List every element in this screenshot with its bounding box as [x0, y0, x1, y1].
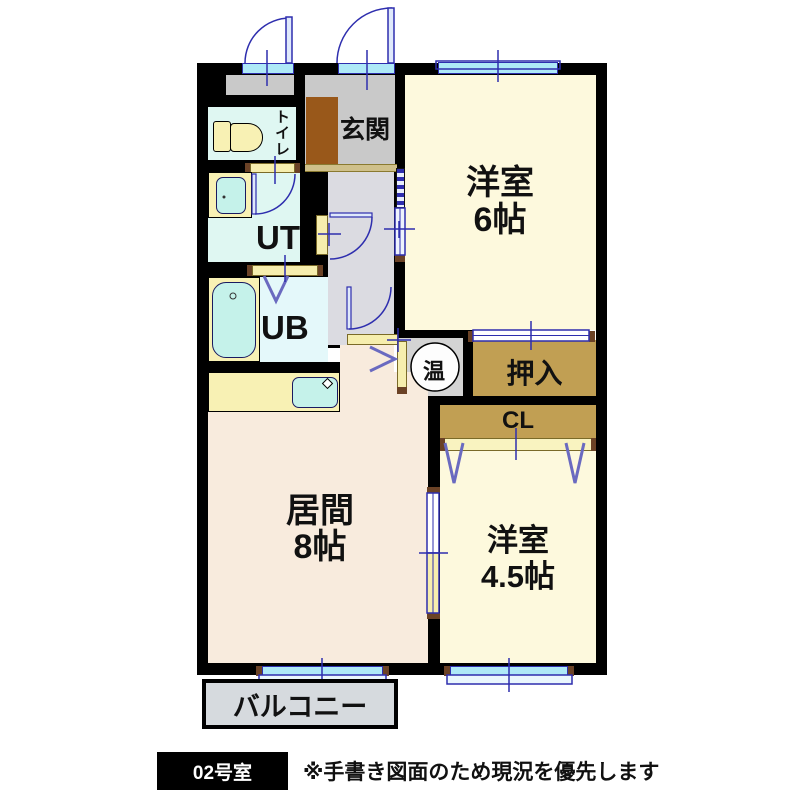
kitchen-sink	[292, 377, 338, 408]
wall-alcove-left	[208, 75, 226, 95]
label-cl: CL	[440, 407, 596, 435]
window-frame-western45	[447, 675, 572, 684]
room-number-badge: 02号室	[157, 752, 288, 790]
cap	[444, 666, 450, 676]
label-western6-name: 洋室	[440, 165, 560, 202]
balcony: バルコニー	[202, 679, 398, 729]
label-water-heater: 温	[423, 354, 445, 386]
door-arc-alcove	[245, 18, 290, 63]
bathtub	[212, 282, 256, 358]
label-oshiire: 押入	[473, 352, 596, 392]
closet-cl-front	[444, 438, 592, 451]
threshold-bath-door	[252, 265, 318, 276]
label-living-name: 居間	[250, 493, 390, 529]
window-living-balcony	[262, 666, 383, 676]
cap	[256, 666, 262, 676]
cap	[318, 265, 323, 276]
window-western45	[450, 666, 568, 676]
jamb-ut-door	[316, 215, 328, 255]
cap	[427, 613, 440, 619]
entry-alcove	[226, 75, 294, 95]
cap	[591, 438, 596, 451]
wall-closet-living	[428, 396, 440, 675]
label-toilet: トイレ	[271, 109, 292, 157]
label-living: 居間 8帖	[250, 493, 390, 565]
label-living-size: 8帖	[250, 529, 390, 565]
toilet-tank	[213, 121, 231, 152]
vanity-basin	[216, 177, 246, 214]
cap	[397, 387, 407, 394]
room-number-text: 02号室	[193, 758, 252, 785]
toilet-bowl	[230, 123, 263, 152]
wall-heater-oshiire	[463, 338, 473, 396]
hallway	[328, 172, 394, 345]
floor-plan: トイレ 玄関 洋室 6帖 UT UB 温 押入 CL 居間 8帖 洋室 4.5帖…	[0, 0, 800, 800]
cap	[568, 666, 574, 676]
cap	[589, 331, 595, 342]
threshold-living-door	[347, 334, 398, 345]
threshold-toilet-door	[250, 163, 295, 173]
footer-note: ※手書き図面のため現況を優先します	[303, 756, 659, 786]
wall-alcove-bottom	[208, 95, 294, 107]
cap	[295, 163, 300, 173]
door-threshold-entrance	[338, 63, 395, 74]
cap	[383, 666, 389, 676]
wall-right	[596, 63, 607, 675]
cap	[247, 265, 252, 276]
label-western6-size: 6帖	[440, 202, 560, 239]
entrance-step-strip	[305, 164, 397, 172]
cap	[440, 438, 445, 451]
window-western6	[438, 62, 558, 74]
jamb-heater	[397, 341, 407, 393]
door-leaf-alcove	[286, 17, 292, 63]
label-utility: UT	[256, 219, 300, 257]
label-western45-size: 4.5帖	[441, 559, 595, 595]
door-leaf-entrance	[388, 8, 394, 63]
door-arc-entrance	[337, 8, 392, 63]
sliding-door-track-western6	[396, 168, 405, 208]
label-balcony: バルコニー	[233, 685, 367, 724]
label-western45: 洋室 4.5帖	[441, 523, 595, 595]
label-entrance: 玄関	[340, 110, 390, 146]
cap	[427, 487, 440, 493]
cap	[468, 331, 474, 342]
label-western6: 洋室 6帖	[440, 165, 560, 239]
hall-living-opening	[340, 345, 394, 372]
door-threshold-alcove	[242, 63, 294, 74]
wall-ub-living	[197, 362, 340, 372]
entrance-mat	[306, 97, 338, 164]
cap	[395, 255, 405, 262]
label-bath: UB	[261, 309, 309, 347]
label-western45-name: 洋室	[441, 523, 595, 559]
